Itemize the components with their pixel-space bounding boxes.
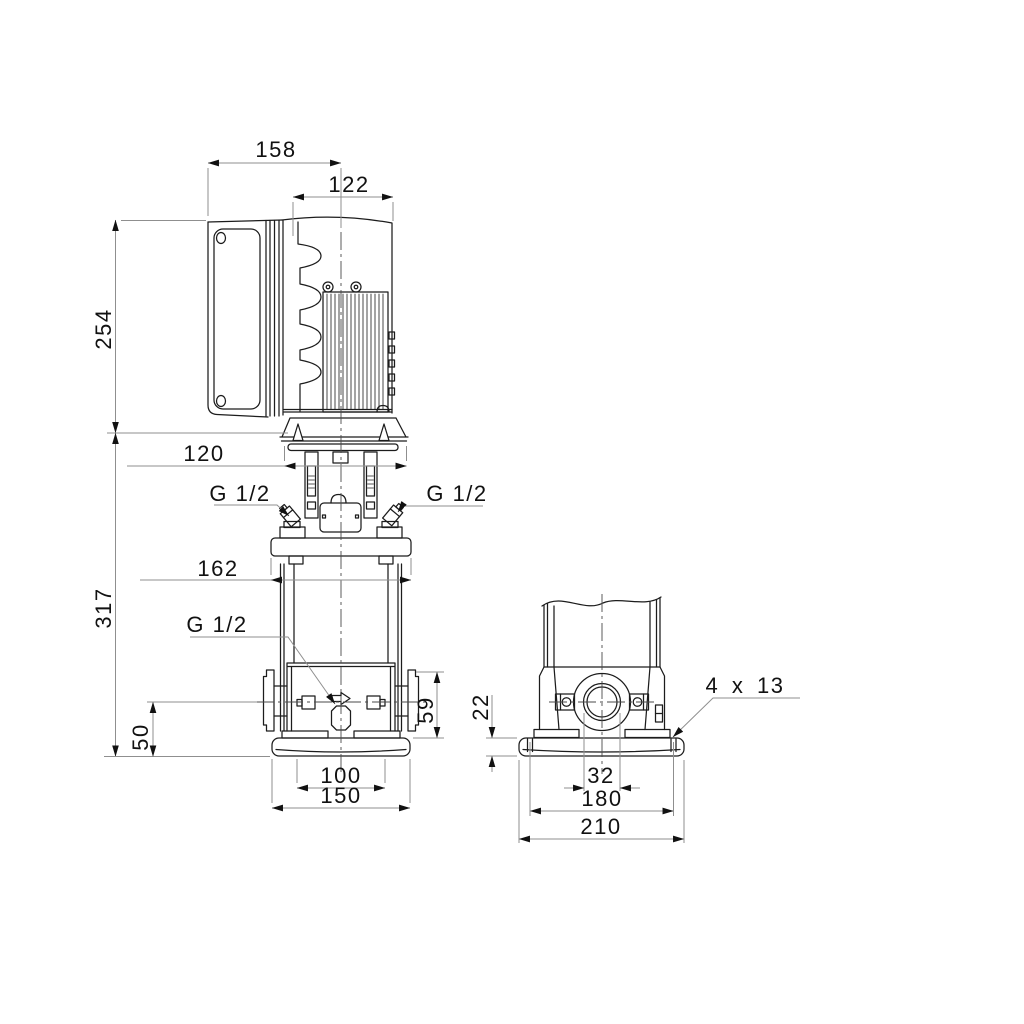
screw-icon xyxy=(351,282,361,292)
staybolt-nut xyxy=(280,527,305,538)
dim-158-label: 158 xyxy=(255,137,296,162)
dim-254-label: 254 xyxy=(91,308,116,349)
screw-icon xyxy=(323,282,333,292)
shaft-end xyxy=(333,452,348,463)
priming-plug-left-label: G 1/2 xyxy=(209,481,270,506)
leader-priming-left xyxy=(214,505,289,516)
dim-59-label: 59 xyxy=(413,696,438,723)
dim-180-label: 180 xyxy=(581,786,622,811)
flange-notch xyxy=(379,424,389,441)
leader-priming-right xyxy=(398,506,483,512)
dim-22-label: 22 xyxy=(468,693,493,720)
base-plate-end xyxy=(519,738,684,756)
staybolt-nut xyxy=(377,527,402,538)
gauge-plug-left xyxy=(297,696,315,709)
priming-plug-left xyxy=(277,503,300,527)
priming-plug-right-label: G 1/2 xyxy=(426,481,487,506)
break-line xyxy=(542,597,661,606)
clamp-clip xyxy=(656,705,663,722)
screw-hole-icon xyxy=(217,233,226,244)
heatsink xyxy=(323,292,388,412)
leader-drain xyxy=(190,637,335,704)
heatsink-fins xyxy=(327,294,383,409)
coupling-guard xyxy=(320,503,361,532)
motor-flange xyxy=(280,418,408,451)
dim-32-label: 32 xyxy=(587,763,614,788)
end-view xyxy=(519,597,684,756)
dim-317-label: 317 xyxy=(91,587,116,628)
flange-notch xyxy=(293,424,303,441)
dim-50-label: 50 xyxy=(128,723,153,750)
dimension-labels: 158 122 254 120 G 1/2 G 1/2 317 162 G 1/… xyxy=(91,137,784,839)
dim-210-label: 210 xyxy=(580,814,621,839)
gauge-plug-right xyxy=(367,696,385,709)
drain-plug-label: G 1/2 xyxy=(186,612,247,637)
dim-150-label: 150 xyxy=(320,783,361,808)
leader-bolt-holes xyxy=(673,698,800,737)
dim-162-label: 162 xyxy=(197,556,238,581)
dim-120-label: 120 xyxy=(183,441,224,466)
drawing-svg: 158 122 254 120 G 1/2 G 1/2 317 162 G 1/… xyxy=(0,0,1024,1024)
dim-122-label: 122 xyxy=(328,172,369,197)
control-box xyxy=(208,220,283,417)
pump-dimensional-drawing: 158 122 254 120 G 1/2 G 1/2 317 162 G 1/… xyxy=(0,0,1024,1024)
motor xyxy=(282,217,395,413)
port-flange-left xyxy=(264,670,275,731)
bolt-holes-label: 4 x 13 xyxy=(706,673,785,698)
screw-hole-icon xyxy=(217,396,226,407)
